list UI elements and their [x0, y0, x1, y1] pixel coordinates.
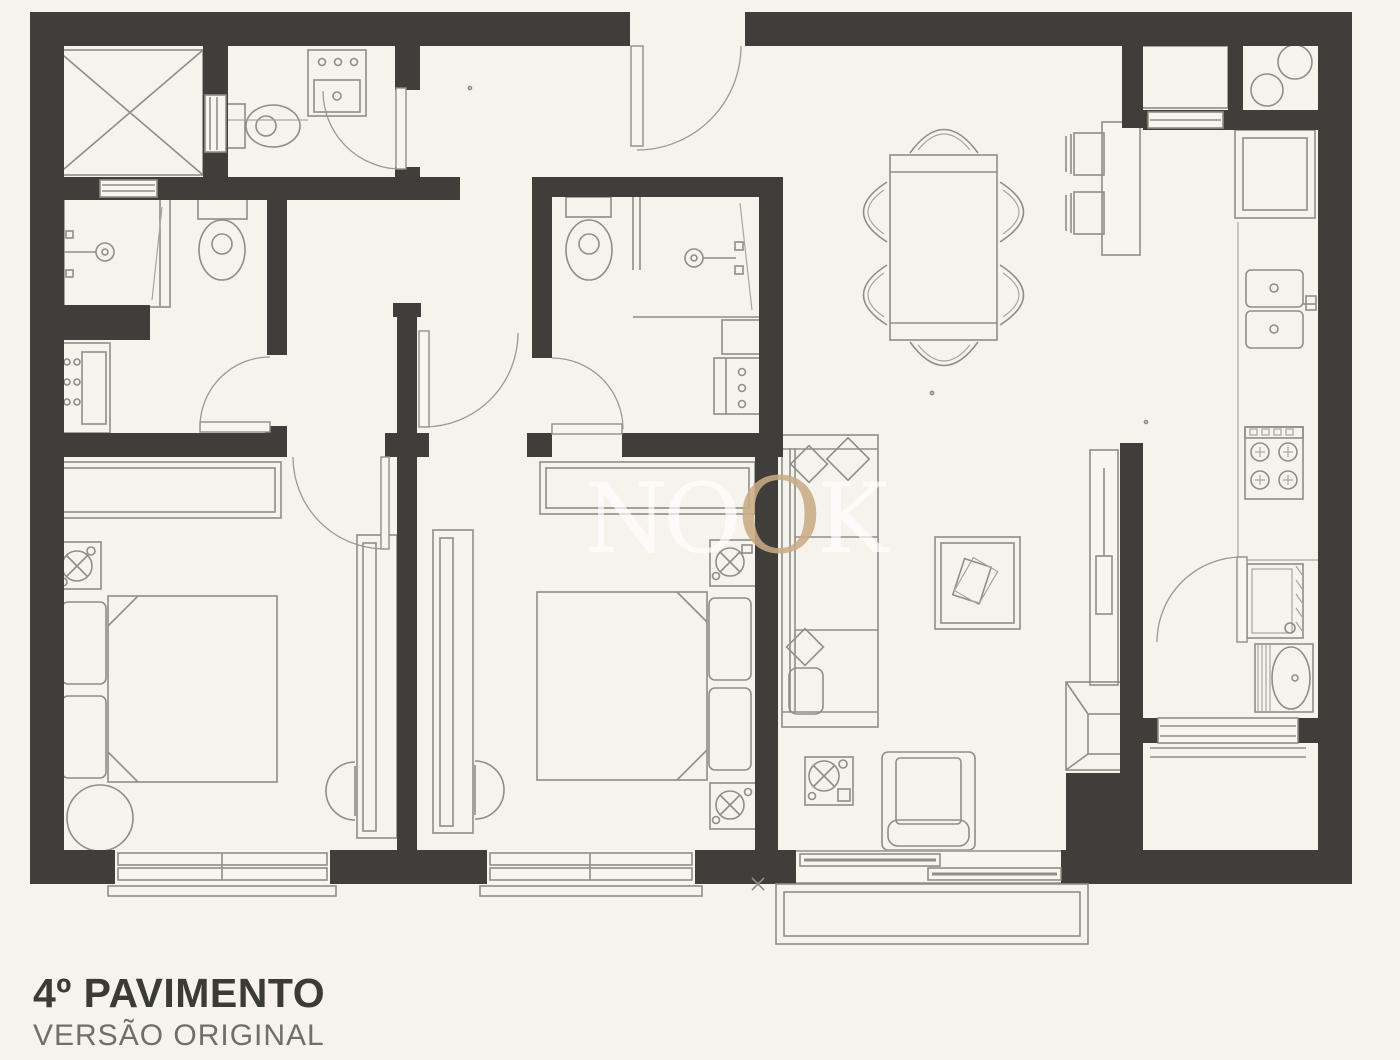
seat-cushion	[789, 668, 823, 714]
living-sliding-door	[796, 850, 1061, 884]
wardrobe	[540, 462, 755, 514]
caption: 4º PAVIMENTO VERSÃO ORIGINAL	[33, 970, 325, 1053]
refrigerator	[1142, 46, 1228, 108]
corner-basin	[1251, 74, 1283, 106]
toilet-tank	[566, 197, 611, 217]
double-bed	[108, 596, 277, 782]
bathroom-window	[100, 180, 157, 197]
bar-stool	[1074, 133, 1104, 175]
chair	[910, 342, 978, 366]
suite2-bathroom-fixtures	[566, 197, 764, 414]
bedroom2-window	[480, 850, 702, 896]
floor-plan-drawing	[0, 0, 1400, 1060]
cushion	[787, 629, 824, 666]
bedroom1-furniture	[55, 462, 397, 851]
dining-set	[864, 130, 1024, 395]
kitchen-fixtures	[1142, 45, 1318, 712]
shaft-window	[205, 95, 226, 152]
bathroom-vanity	[57, 343, 110, 433]
bedroom2-door	[419, 331, 518, 427]
wardrobe	[57, 462, 281, 518]
page-title: 4º PAVIMENTO	[33, 970, 325, 1017]
bar-stool	[1074, 192, 1104, 234]
laundry-door	[1157, 557, 1247, 642]
suite2-bathroom-door	[552, 358, 623, 434]
coffee-table	[935, 537, 1020, 629]
armchair	[882, 752, 975, 850]
corner-basin	[1278, 45, 1312, 79]
balcony	[776, 884, 1088, 944]
bedroom2-furniture	[433, 462, 756, 833]
dot	[469, 87, 472, 90]
tv-panel	[1090, 450, 1118, 685]
shower-head-icon	[685, 249, 703, 267]
double-bed	[537, 592, 707, 780]
desk-chair	[326, 762, 355, 820]
toilet-bowl	[566, 220, 612, 280]
page-subtitle: VERSÃO ORIGINAL	[33, 1019, 325, 1053]
kitchen-sink	[1246, 311, 1303, 348]
desk-chair	[475, 761, 504, 819]
cushion	[827, 438, 869, 480]
walls	[30, 12, 1352, 884]
fridge-door-inset	[1148, 112, 1223, 128]
sofa	[782, 435, 878, 727]
toilet-bowl	[199, 220, 245, 280]
suite1-bathroom-door	[200, 357, 270, 432]
chair	[910, 130, 978, 154]
social-wc-fixtures	[223, 50, 366, 148]
round-pouf	[67, 785, 133, 851]
elevator-shaft	[57, 50, 203, 175]
dot	[1145, 421, 1148, 424]
magazine	[953, 559, 991, 604]
cushion	[791, 446, 828, 483]
bar-counter	[1066, 122, 1140, 255]
pillow	[709, 688, 751, 770]
laundry-window	[1150, 718, 1306, 757]
nightstand-lamp-icon	[710, 540, 756, 586]
toilet-tank	[198, 197, 247, 219]
gas-stove	[1245, 427, 1303, 499]
bedroom1-window	[108, 850, 336, 896]
floor-lamp-icon	[805, 757, 853, 805]
toilet-bowl	[246, 105, 300, 147]
pillow	[62, 602, 106, 684]
pillow	[62, 696, 106, 778]
entry-door	[631, 46, 741, 150]
kitchen-sink	[1246, 270, 1303, 307]
washing-machine	[1247, 564, 1303, 638]
laundry-tank	[1255, 644, 1313, 712]
corner-tv-stand	[1066, 682, 1123, 770]
pillow	[709, 598, 751, 680]
kitchen-cabinet	[1235, 130, 1315, 218]
floor-plan-page: NOOK 4º PAVIMENTO VERSÃO ORIGINAL	[0, 0, 1400, 1060]
faucet-icon	[1306, 296, 1316, 310]
shower-head-icon	[96, 243, 114, 261]
dining-table	[890, 155, 997, 340]
nightstand-lamp-icon	[710, 783, 756, 829]
